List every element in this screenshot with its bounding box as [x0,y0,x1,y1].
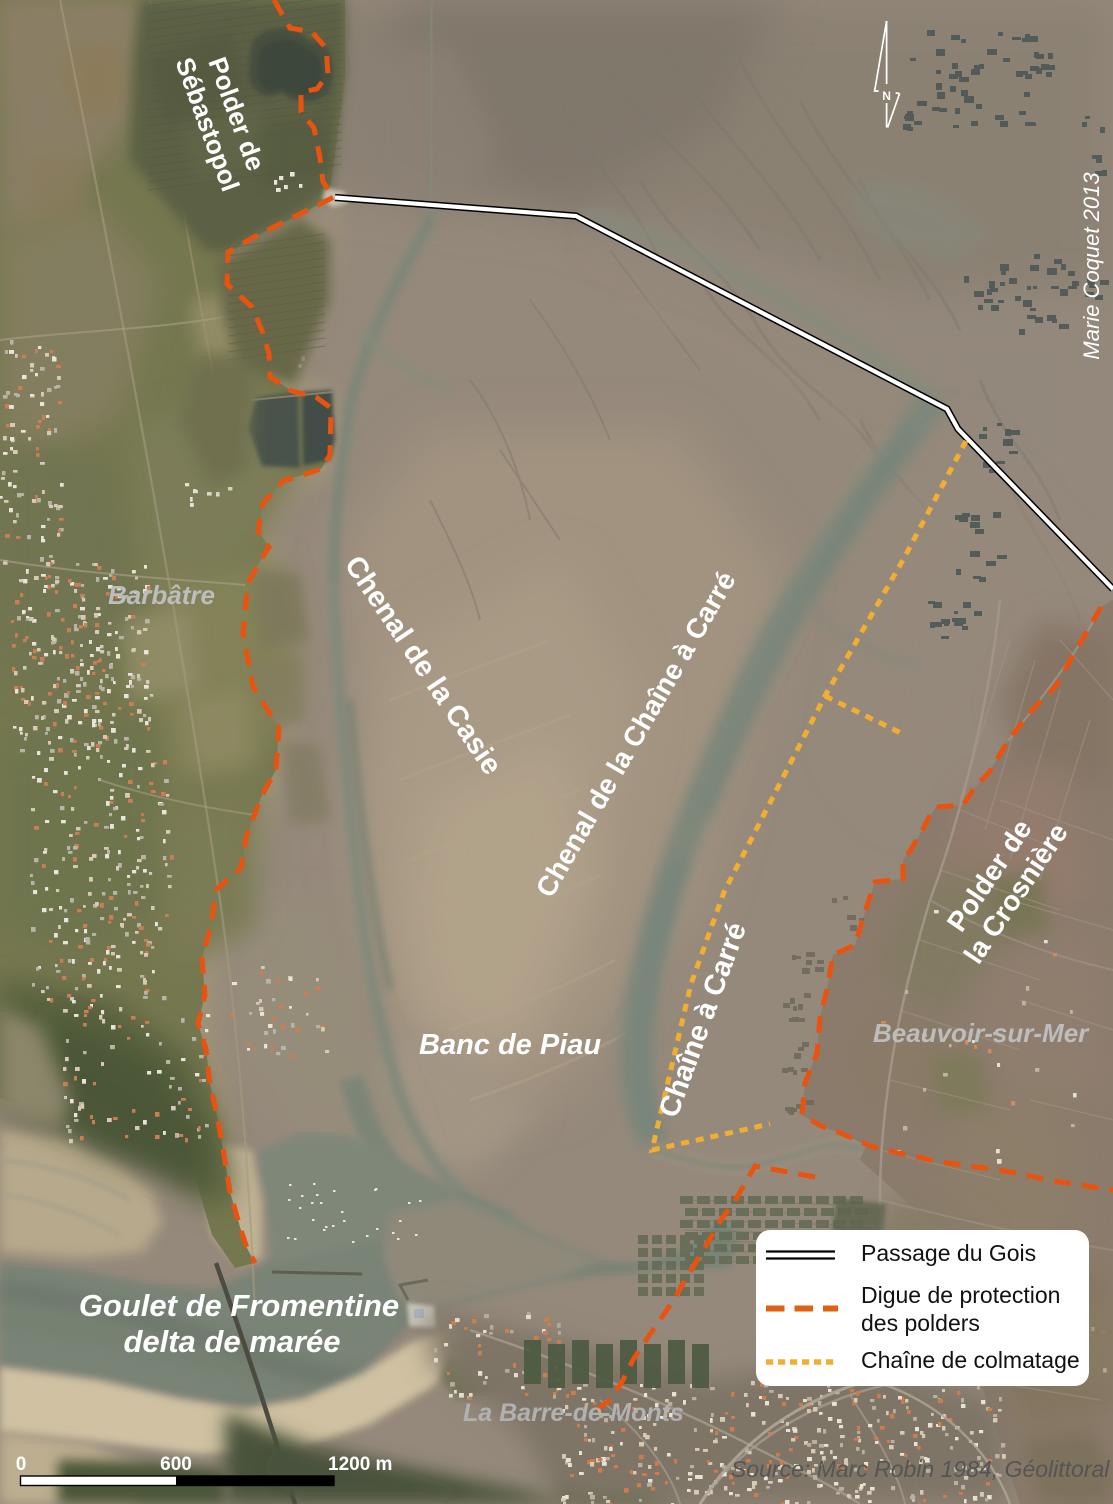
svg-text:N: N [882,89,891,103]
svg-text:Chaîne de colmatage: Chaîne de colmatage [861,1347,1080,1373]
svg-text:0: 0 [16,1454,27,1475]
svg-text:600: 600 [160,1454,192,1475]
svg-text:Goulet de Fromentine: Goulet de Fromentine [79,1288,399,1323]
svg-text:Digue de protection: Digue de protection [861,1282,1060,1308]
svg-text:Beauvoir-sur-Mer: Beauvoir-sur-Mer [873,1018,1090,1048]
svg-text:Barbâtre: Barbâtre [108,580,215,610]
svg-text:des polders: des polders [861,1310,980,1336]
svg-text:1200 m: 1200 m [328,1454,392,1475]
svg-text:Banc de Piau: Banc de Piau [419,1029,601,1061]
svg-text:La Barre-de-Monts: La Barre-de-Monts [463,1399,684,1427]
svg-text:Passage du Gois: Passage du Gois [861,1240,1036,1266]
svg-text:delta de marée: delta de marée [123,1324,340,1359]
svg-text:Marie Coquet 2013: Marie Coquet 2013 [1079,172,1104,360]
svg-text:Source: Marc Robin 1984, Géoli: Source: Marc Robin 1984, Géolittoral [731,1456,1110,1482]
